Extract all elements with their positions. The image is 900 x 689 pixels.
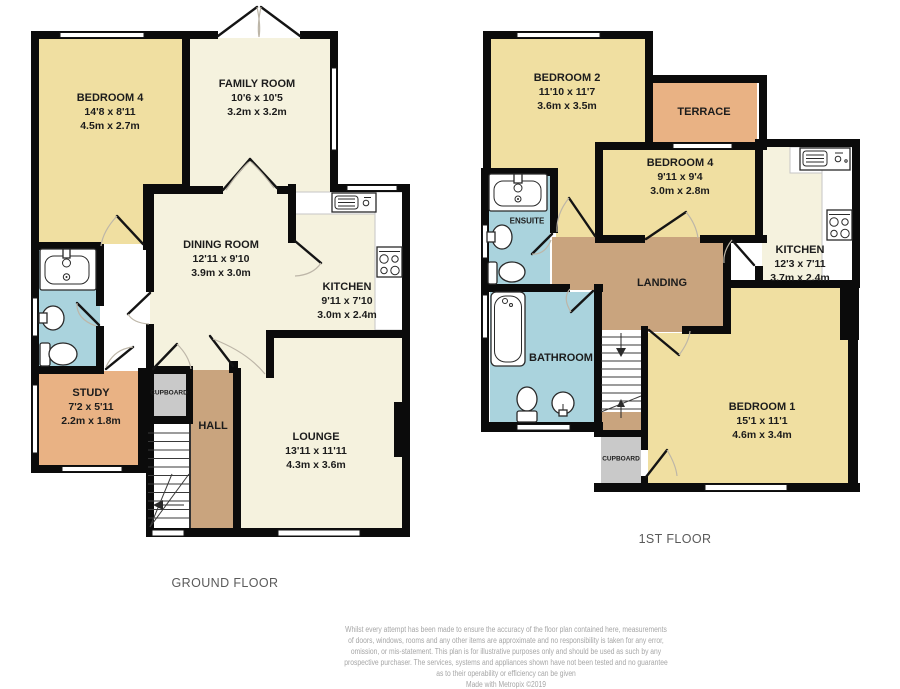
room-name: BEDROOM 1 [729,400,796,414]
disclaimer-line: as to their operability or efficiency ca… [344,668,667,679]
ff-hob-icon [827,210,852,240]
room-label-gf-kitchen: KITCHEN 9'11 x 7'10 3.0m x 2.4m [317,280,377,322]
room-dims-metric: 4.5m x 2.7m [77,119,144,133]
gf-hob-icon [377,247,402,277]
disclaimer-line: prospective purchaser. The services, sys… [344,657,667,668]
room-label-ff-bedroom2: BEDROOM 2 11'10 x 11'7 3.6m x 3.5m [534,71,601,113]
room-dims-imperial: 9'11 x 7'10 [317,294,377,308]
room-label-ff-bedroom4: BEDROOM 4 9'11 x 9'4 3.0m x 2.8m [647,156,714,198]
ensuite-toilet-icon [488,262,525,284]
room-label-ff-landing: LANDING [637,276,687,290]
room-label-ff-cupboard: CUPBOARD [602,456,640,463]
room-name: TERRACE [677,105,730,119]
room-name: KITCHEN [770,243,830,257]
room-dims-metric: 3.0m x 2.4m [317,308,377,322]
room-label-gf-dining-room: DINING ROOM 12'11 x 9'10 3.9m x 3.0m [183,238,259,280]
disclaimer-line: omission, or mis-statement. This plan is… [344,646,667,657]
room-dims-metric: 3.9m x 3.0m [183,266,259,280]
disclaimer-line: Whilst every attempt has been made to en… [344,624,667,635]
room-label-gf-study: STUDY 7'2 x 5'11 2.2m x 1.8m [61,386,121,428]
room-name: LANDING [637,276,687,290]
room-label-ff-bathroom: BATHROOM [529,351,593,365]
room-dims-imperial: 12'3 x 7'11 [770,257,830,271]
room-dims-imperial: 9'11 x 9'4 [647,170,714,184]
bathtub-icon [491,292,525,366]
ff-kitchen-sink-icon [800,148,850,170]
room-name: DINING ROOM [183,238,259,252]
wc-toilet-icon [40,343,77,366]
room-name: HALL [198,419,227,433]
gf-kitchen-sink-icon [332,193,376,212]
room-dims-metric: 3.6m x 3.5m [534,99,601,113]
room-name: KITCHEN [317,280,377,294]
room-dims-metric: 4.6m x 3.4m [729,428,796,442]
room-dims-metric: 3.7m x 2.4m [770,271,830,285]
disclaimer-line: of doors, windows, rooms and any other i… [344,635,667,646]
ensuite-sink-icon [489,174,547,211]
room-name: BEDROOM 2 [534,71,601,85]
room-label-ff-bedroom1: BEDROOM 1 15'1 x 11'1 4.6m x 3.4m [729,400,796,442]
room-dims-imperial: 15'1 x 11'1 [729,414,796,428]
wc-sink-icon [40,249,96,290]
room-label-gf-cupboard: CUPBOARD [150,390,188,397]
room-label-gf-hall: HALL [198,419,227,433]
room-label-gf-bedroom4: BEDROOM 4 14'8 x 8'11 4.5m x 2.7m [77,91,144,133]
room-name: BATHROOM [529,351,593,365]
room-dims-metric: 2.2m x 1.8m [61,414,121,428]
bathroom-toilet-icon [517,387,537,422]
room-dims-imperial: 10'6 x 10'5 [219,91,295,105]
room-label-ff-ensuite: ENSUITE [510,217,545,226]
room-label-gf-family-room: FAMILY ROOM 10'6 x 10'5 3.2m x 3.2m [219,77,295,119]
room-name: BEDROOM 4 [647,156,714,170]
room-dims-metric: 3.0m x 2.8m [647,184,714,198]
first-floor-title: 1ST FLOOR [639,532,712,546]
ground-floor-title: GROUND FLOOR [172,576,279,590]
room-name: LOUNGE [285,430,347,444]
room-name: STUDY [61,386,121,400]
room-dims-imperial: 12'11 x 9'10 [183,252,259,266]
metropix-credit: Made with Metropix ©2019 [344,679,667,689]
room-dims-imperial: 7'2 x 5'11 [61,400,121,414]
room-dims-metric: 4.3m x 3.6m [285,458,347,472]
floorplan-canvas: BEDROOM 4 14'8 x 8'11 4.5m x 2.7m FAMILY… [0,0,900,689]
room-dims-imperial: 11'10 x 11'7 [534,85,601,99]
room-name: FAMILY ROOM [219,77,295,91]
disclaimer: Whilst every attempt has been made to en… [314,624,699,689]
room-name: BEDROOM 4 [77,91,144,105]
room-name: CUPBOARD [602,456,640,463]
room-name: CUPBOARD [150,390,188,397]
room-dims-metric: 3.2m x 3.2m [219,105,295,119]
room-label-ff-kitchen: KITCHEN 12'3 x 7'11 3.7m x 2.4m [770,243,830,285]
room-dims-imperial: 14'8 x 8'11 [77,105,144,119]
room-dims-imperial: 13'11 x 11'11 [285,444,347,458]
room-label-ff-terrace: TERRACE [677,105,730,119]
room-name: ENSUITE [510,217,545,226]
room-label-gf-lounge: LOUNGE 13'11 x 11'11 4.3m x 3.6m [285,430,347,472]
